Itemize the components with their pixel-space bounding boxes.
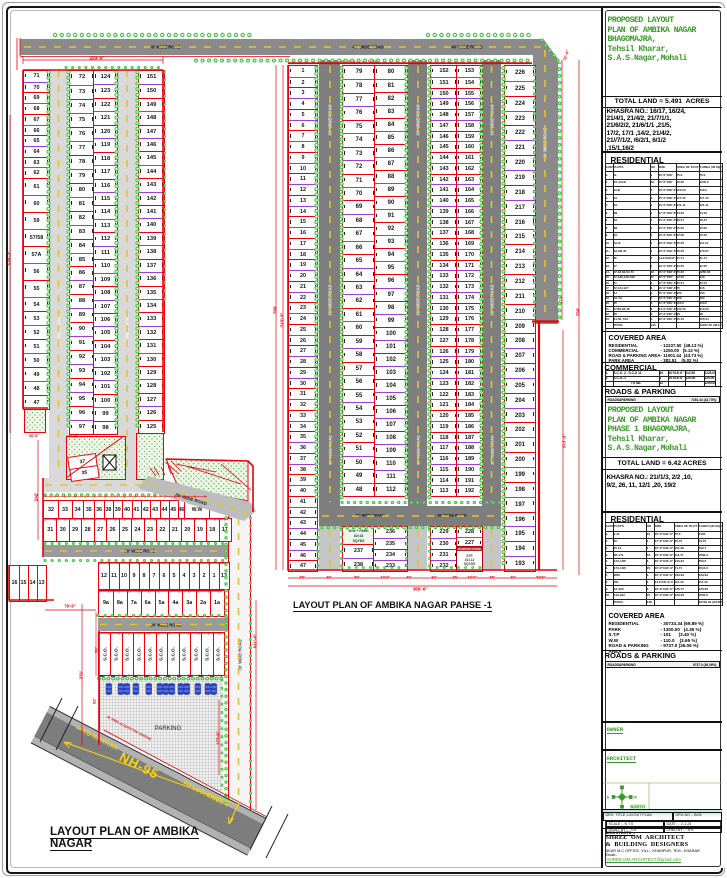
svg-text:W: W <box>633 795 637 799</box>
svg-text:E: E <box>607 795 610 799</box>
